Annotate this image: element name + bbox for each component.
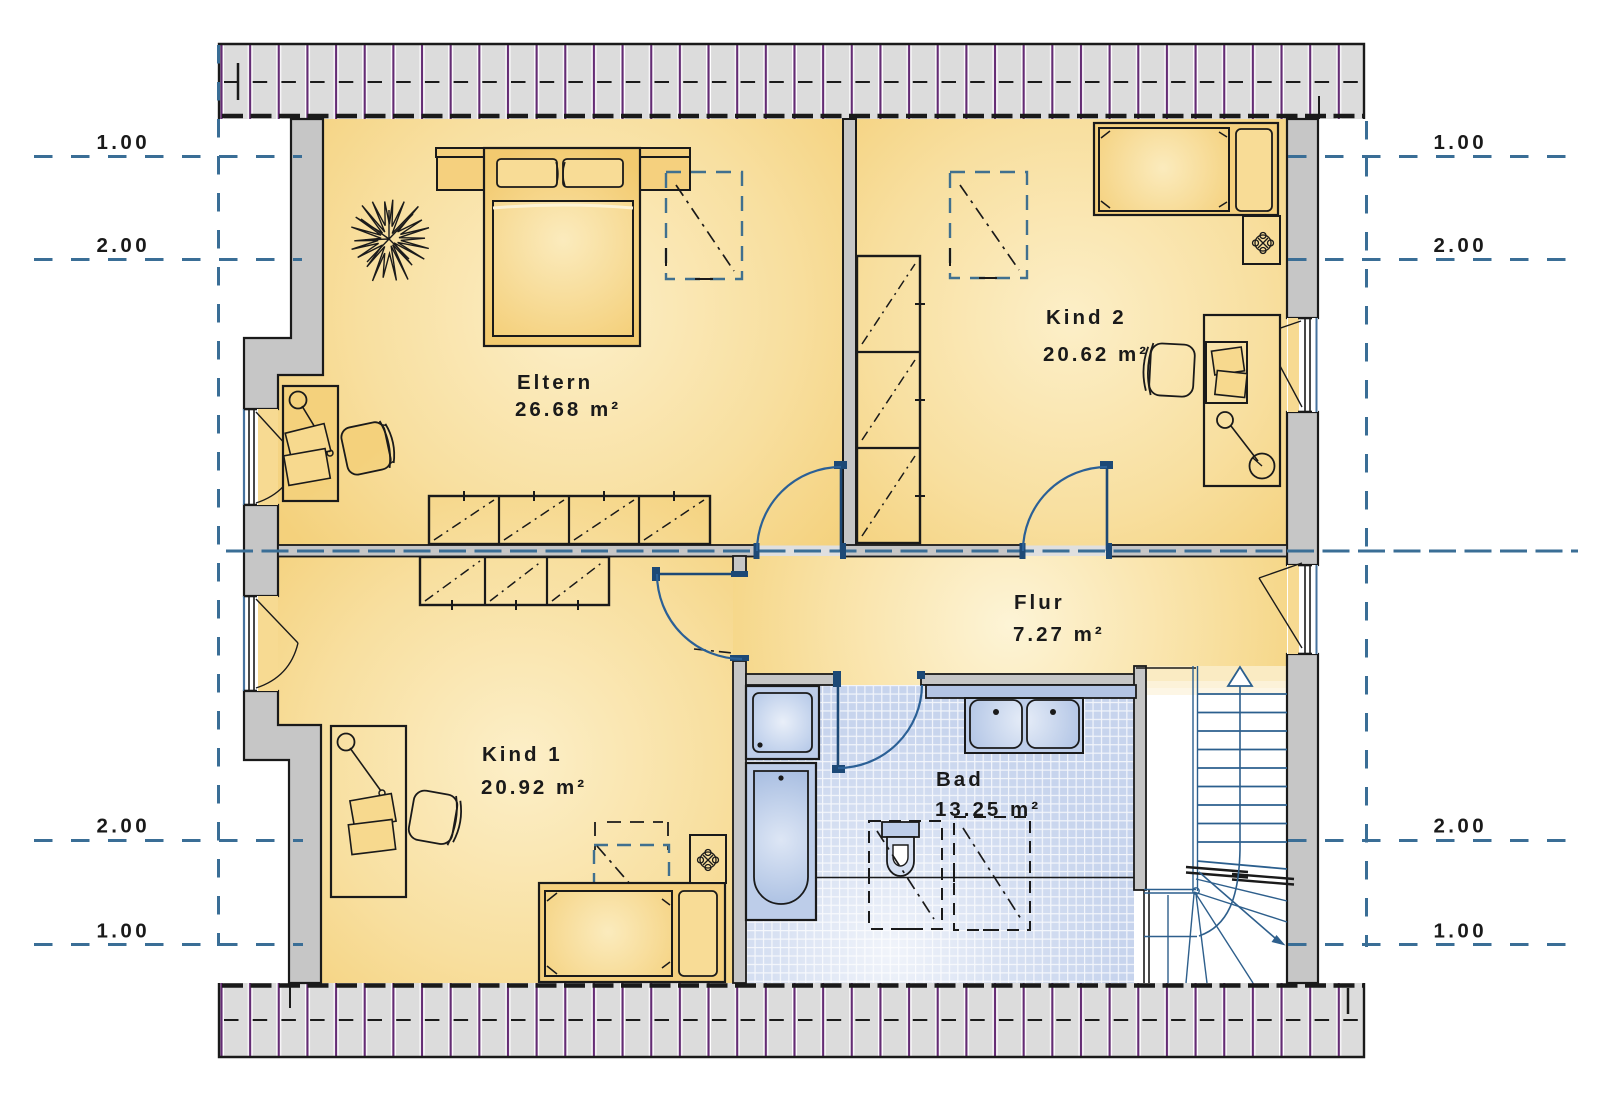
svg-text:7.27 m²: 7.27 m²: [1013, 623, 1105, 646]
svg-text:2.00: 2.00: [97, 234, 151, 257]
svg-text:Flur: Flur: [1014, 591, 1065, 614]
svg-text:Bad: Bad: [936, 768, 984, 791]
svg-text:1.00: 1.00: [97, 131, 151, 154]
svg-text:2.00: 2.00: [1434, 234, 1488, 257]
svg-text:Kind 2: Kind 2: [1046, 306, 1127, 329]
svg-text:13.25 m²: 13.25 m²: [935, 798, 1041, 821]
svg-text:Eltern: Eltern: [517, 371, 593, 394]
svg-text:1.00: 1.00: [1434, 920, 1488, 943]
svg-text:20.92 m²: 20.92 m²: [481, 776, 587, 799]
svg-text:1.00: 1.00: [97, 920, 151, 943]
svg-text:26.68 m²: 26.68 m²: [515, 398, 621, 421]
svg-text:20.62 m²: 20.62 m²: [1043, 343, 1149, 366]
svg-text:Kind 1: Kind 1: [482, 743, 563, 766]
svg-text:1.00: 1.00: [1434, 131, 1488, 154]
svg-text:2.00: 2.00: [1434, 815, 1488, 838]
svg-text:2.00: 2.00: [97, 815, 151, 838]
